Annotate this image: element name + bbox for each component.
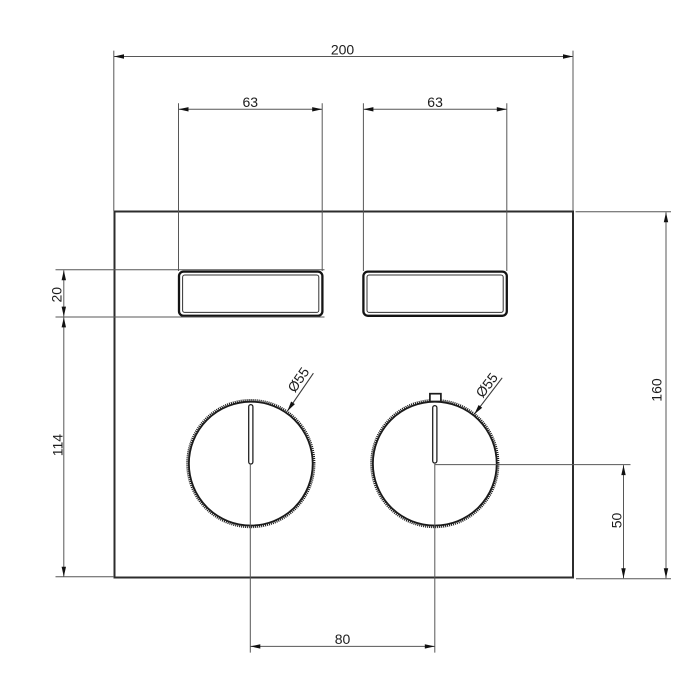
svg-text:20: 20 — [48, 287, 64, 303]
svg-text:114: 114 — [50, 434, 66, 457]
svg-text:80: 80 — [335, 631, 351, 647]
svg-text:63: 63 — [243, 94, 259, 110]
svg-text:63: 63 — [427, 94, 443, 110]
svg-text:160: 160 — [648, 378, 664, 402]
svg-text:200: 200 — [331, 42, 355, 58]
svg-text:50: 50 — [608, 513, 624, 529]
